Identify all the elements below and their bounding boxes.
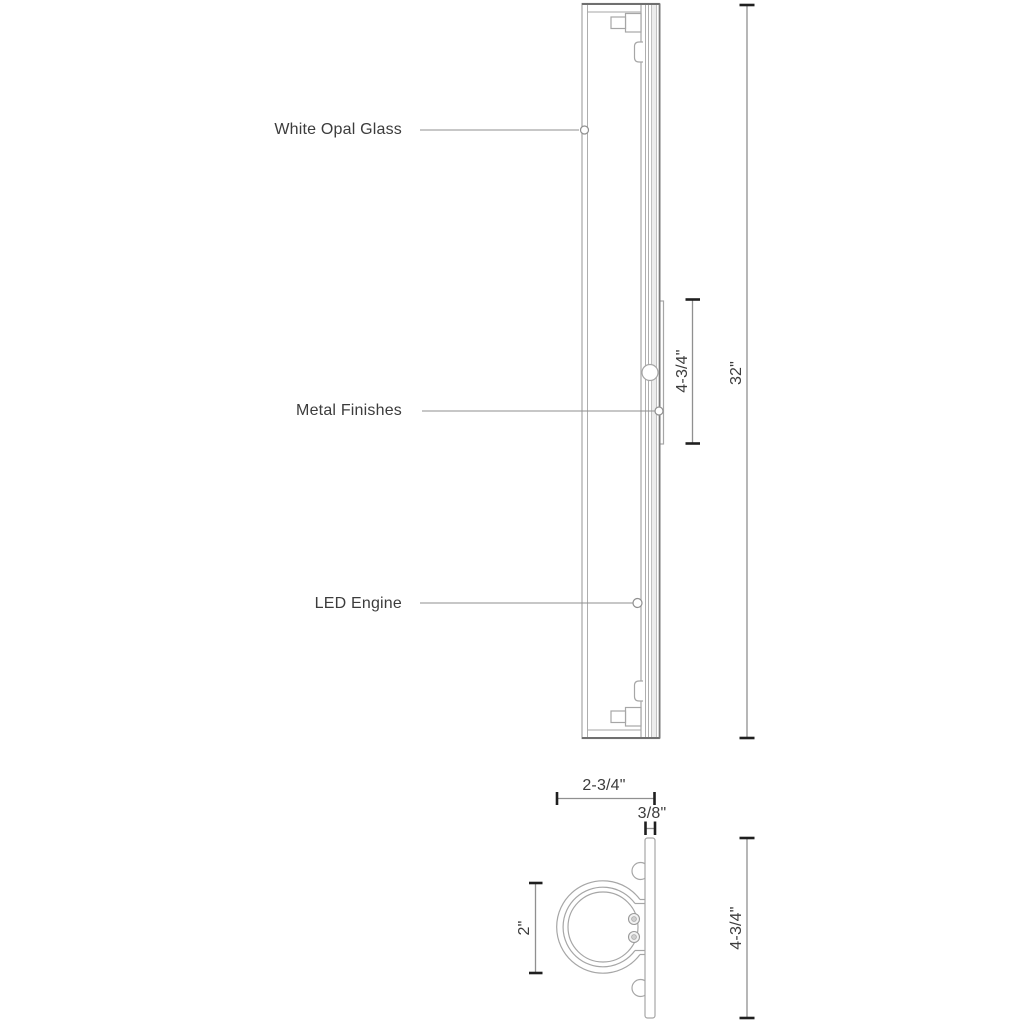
- dimension-text-plate-thickness: 3/8": [638, 805, 667, 822]
- dim-body-depth: 2-3/4": [557, 777, 655, 805]
- technical-drawing-page: White Opal Glass Metal Finishes LED Engi…: [0, 0, 1024, 1024]
- strap-outer-arc: [557, 881, 640, 973]
- mounting-knob: [642, 365, 658, 381]
- dimension-text-plate-height: 4-3/4": [728, 906, 745, 949]
- screw-center: [632, 917, 637, 922]
- leader-dot: [581, 126, 589, 134]
- dim-backplate-height: 4-3/4": [674, 300, 700, 444]
- dim-plate-thickness: 3/8": [638, 805, 667, 835]
- top-clip-tab: [635, 42, 644, 62]
- end-view: [557, 838, 655, 1018]
- callout-label-white-opal-glass: White Opal Glass: [274, 121, 402, 138]
- dimension-text-depth: 2-3/4": [582, 777, 625, 794]
- callout-white-opal-glass: White Opal Glass: [274, 121, 588, 138]
- dimension-text-glass-diameter: 2": [516, 921, 533, 936]
- callout-label-led-engine: LED Engine: [315, 595, 402, 612]
- backplate: [645, 838, 655, 1018]
- dimension-text-overall-height: 32": [728, 361, 745, 385]
- dim-plate-height: 4-3/4": [728, 838, 755, 1018]
- screw-center: [632, 935, 637, 940]
- dim-glass-diameter: 2": [516, 883, 543, 973]
- bottom-lampholder-block: [626, 708, 642, 727]
- dimension-text-backplate-height: 4-3/4": [674, 349, 691, 392]
- top-lampholder-block: [626, 14, 642, 33]
- leader-dot: [633, 599, 642, 608]
- glass-tube-circle: [568, 892, 638, 962]
- bottom-clip-tab: [635, 681, 644, 701]
- sconce-dimension-drawing: White Opal Glass Metal Finishes LED Engi…: [0, 0, 1024, 1024]
- bottom-lampholder-pin: [611, 711, 626, 723]
- side-view: [582, 4, 664, 739]
- top-lampholder-pin: [611, 17, 626, 29]
- dim-overall-height: 32": [728, 5, 755, 738]
- leader-dot: [655, 407, 663, 415]
- callout-label-metal-finishes: Metal Finishes: [296, 402, 402, 419]
